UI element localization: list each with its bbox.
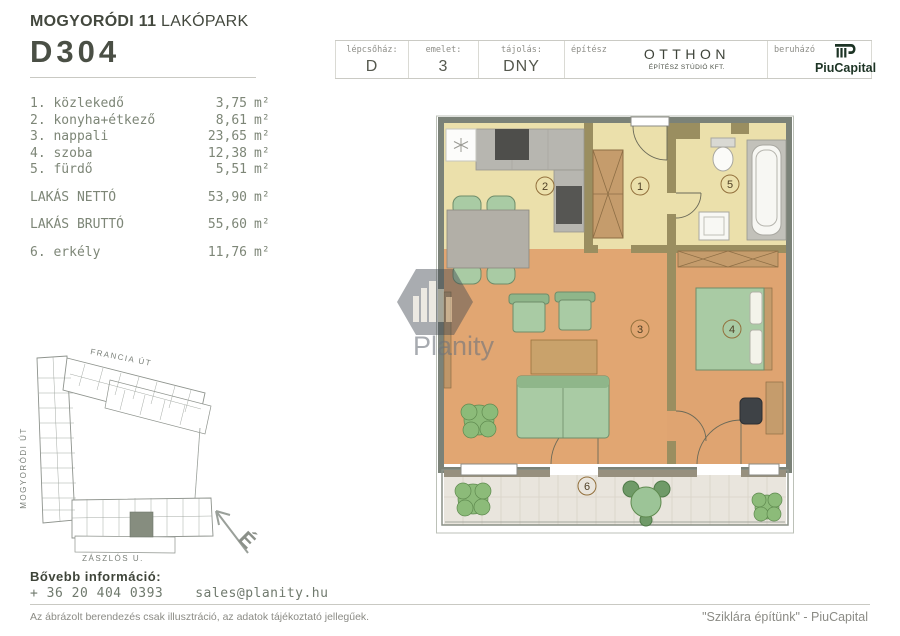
- total-net-row: LAKÁS NETTÓ53,90m²: [30, 190, 280, 207]
- room-unit: m²: [254, 113, 280, 128]
- total-name: LAKÁS NETTÓ: [30, 190, 197, 205]
- site-plan: FRANCIA ÚT MOGYORÓDI ÚT ZÁSZLÓS U. É: [15, 338, 270, 578]
- svg-text:3: 3: [637, 324, 643, 336]
- floor-label: emelet:: [426, 45, 462, 55]
- room-unit: m²: [254, 96, 280, 111]
- unit-info-table: lépcsőház: D emelet: 3 tájolás: DNY épít…: [335, 40, 872, 79]
- info-cell-developer: beruházó PiuCapital: [767, 41, 872, 78]
- developer-logo: PiuCapital: [815, 43, 876, 75]
- sofa: [517, 376, 609, 438]
- room-area: 12,38: [197, 146, 247, 161]
- footer-slogan: "Sziklára építünk" - PiuCapital: [702, 610, 868, 624]
- svg-text:5: 5: [727, 179, 733, 191]
- info-cell-orientation: tájolás: DNY: [478, 41, 564, 78]
- compass-letter: É: [233, 527, 259, 553]
- room-name: 1. közlekedő: [30, 96, 197, 111]
- room-row-3: 3. nappali23,65m²: [30, 129, 280, 146]
- room-area-list: 1. közlekedő3,75m² 2. konyha+étkező8,61m…: [30, 96, 280, 261]
- footer-info-label: Bővebb információ:: [30, 569, 161, 584]
- bedroom-wardrobe: [678, 251, 778, 267]
- plant: [455, 483, 491, 516]
- info-cell-floor: emelet: 3: [408, 41, 478, 78]
- svg-text:1: 1: [637, 181, 643, 193]
- plant: [461, 404, 498, 438]
- room-unit: m²: [254, 162, 280, 177]
- staircase-label: lépcsőház:: [346, 45, 397, 55]
- desk-chair: [740, 398, 762, 424]
- total-area: 53,90: [197, 190, 247, 205]
- unit-underline: [30, 77, 256, 78]
- svg-text:6: 6: [584, 481, 590, 493]
- north-arrow-icon: É: [216, 511, 260, 553]
- room-area: 8,61: [197, 113, 247, 128]
- armchair: [509, 294, 549, 332]
- footer-contacts: + 36 20 404 0393 sales@planity.hu: [30, 586, 328, 601]
- headboard: [764, 288, 772, 370]
- room-name: 3. nappali: [30, 129, 197, 144]
- room-area: 23,65: [197, 129, 247, 144]
- street-label-bottom: ZÁSZLÓS U.: [82, 554, 144, 563]
- unit-id: D304: [30, 34, 120, 70]
- floor-plan: 1 2 3 4 5 6: [435, 114, 795, 540]
- piucapital-logo-icon: [833, 43, 859, 60]
- architect-name: OTTHON: [607, 46, 767, 62]
- project-title-bold: MOGYORÓDI 11: [30, 13, 156, 30]
- room-area: 11,76: [197, 245, 247, 260]
- room-unit: m²: [254, 245, 280, 260]
- footer-phone: + 36 20 404 0393: [30, 586, 163, 601]
- total-gross-row: LAKÁS BRUTTÓ55,60m²: [30, 217, 280, 234]
- svg-text:4: 4: [729, 324, 735, 336]
- developer-label: beruházó: [774, 45, 815, 55]
- room-area: 5,51: [197, 162, 247, 177]
- room-unit: m²: [254, 129, 280, 144]
- balcony-row: 6. erkély11,76m²: [30, 245, 280, 262]
- room-area: 3,75: [197, 96, 247, 111]
- total-unit: m²: [254, 190, 280, 205]
- total-name: LAKÁS BRUTTÓ: [30, 217, 197, 232]
- info-cell-staircase: lépcsőház: D: [335, 41, 408, 78]
- room-name: 4. szoba: [30, 146, 197, 161]
- armchair: [555, 292, 595, 330]
- staircase-value: D: [366, 58, 379, 76]
- info-cell-architect: építész OTTHON ÉPÍTÉSZ STÚDIÓ KFT.: [564, 41, 767, 78]
- plant: [752, 493, 782, 521]
- room-row-2: 2. konyha+étkező8,61m²: [30, 113, 280, 130]
- total-area: 55,60: [197, 217, 247, 232]
- room-name: 6. erkély: [30, 245, 197, 260]
- desk: [766, 382, 783, 434]
- orientation-value: DNY: [503, 58, 540, 76]
- room-row-5: 5. fürdő5,51m²: [30, 162, 280, 179]
- site-highlighted-unit: [130, 512, 153, 537]
- project-title: MOGYORÓDI 11 LAKÓPARK: [30, 13, 249, 31]
- coffee-table: [531, 340, 597, 374]
- architect-logo: OTTHON ÉPÍTÉSZ STÚDIÓ KFT.: [607, 46, 767, 71]
- room-row-4: 4. szoba12,38m²: [30, 146, 280, 163]
- room-name: 5. fürdő: [30, 162, 197, 177]
- footer-divider: [30, 604, 870, 605]
- footer-disclaimer: Az ábrázolt berendezés csak illusztráció…: [30, 611, 369, 623]
- developer-name: PiuCapital: [815, 61, 876, 75]
- street-label-top: FRANCIA ÚT: [90, 347, 153, 368]
- architect-subtitle: ÉPÍTÉSZ STÚDIÓ KFT.: [607, 64, 767, 71]
- street-label-left: MOGYORÓDI ÚT: [19, 427, 28, 509]
- orientation-label: tájolás:: [501, 45, 542, 55]
- washer-icon: [446, 129, 476, 161]
- room-row-1: 1. közlekedő3,75m²: [30, 96, 280, 113]
- floor-value: 3: [439, 58, 449, 76]
- architect-label: építész: [571, 45, 607, 55]
- site-plan-buildings: [37, 356, 213, 553]
- total-unit: m²: [254, 217, 280, 232]
- room-unit: m²: [254, 146, 280, 161]
- project-title-rest: LAKÓPARK: [156, 13, 248, 30]
- room-name: 2. konyha+étkező: [30, 113, 197, 128]
- hall-wardrobe: [593, 150, 623, 238]
- footer-email: sales@planity.hu: [195, 586, 328, 601]
- svg-text:2: 2: [542, 181, 548, 193]
